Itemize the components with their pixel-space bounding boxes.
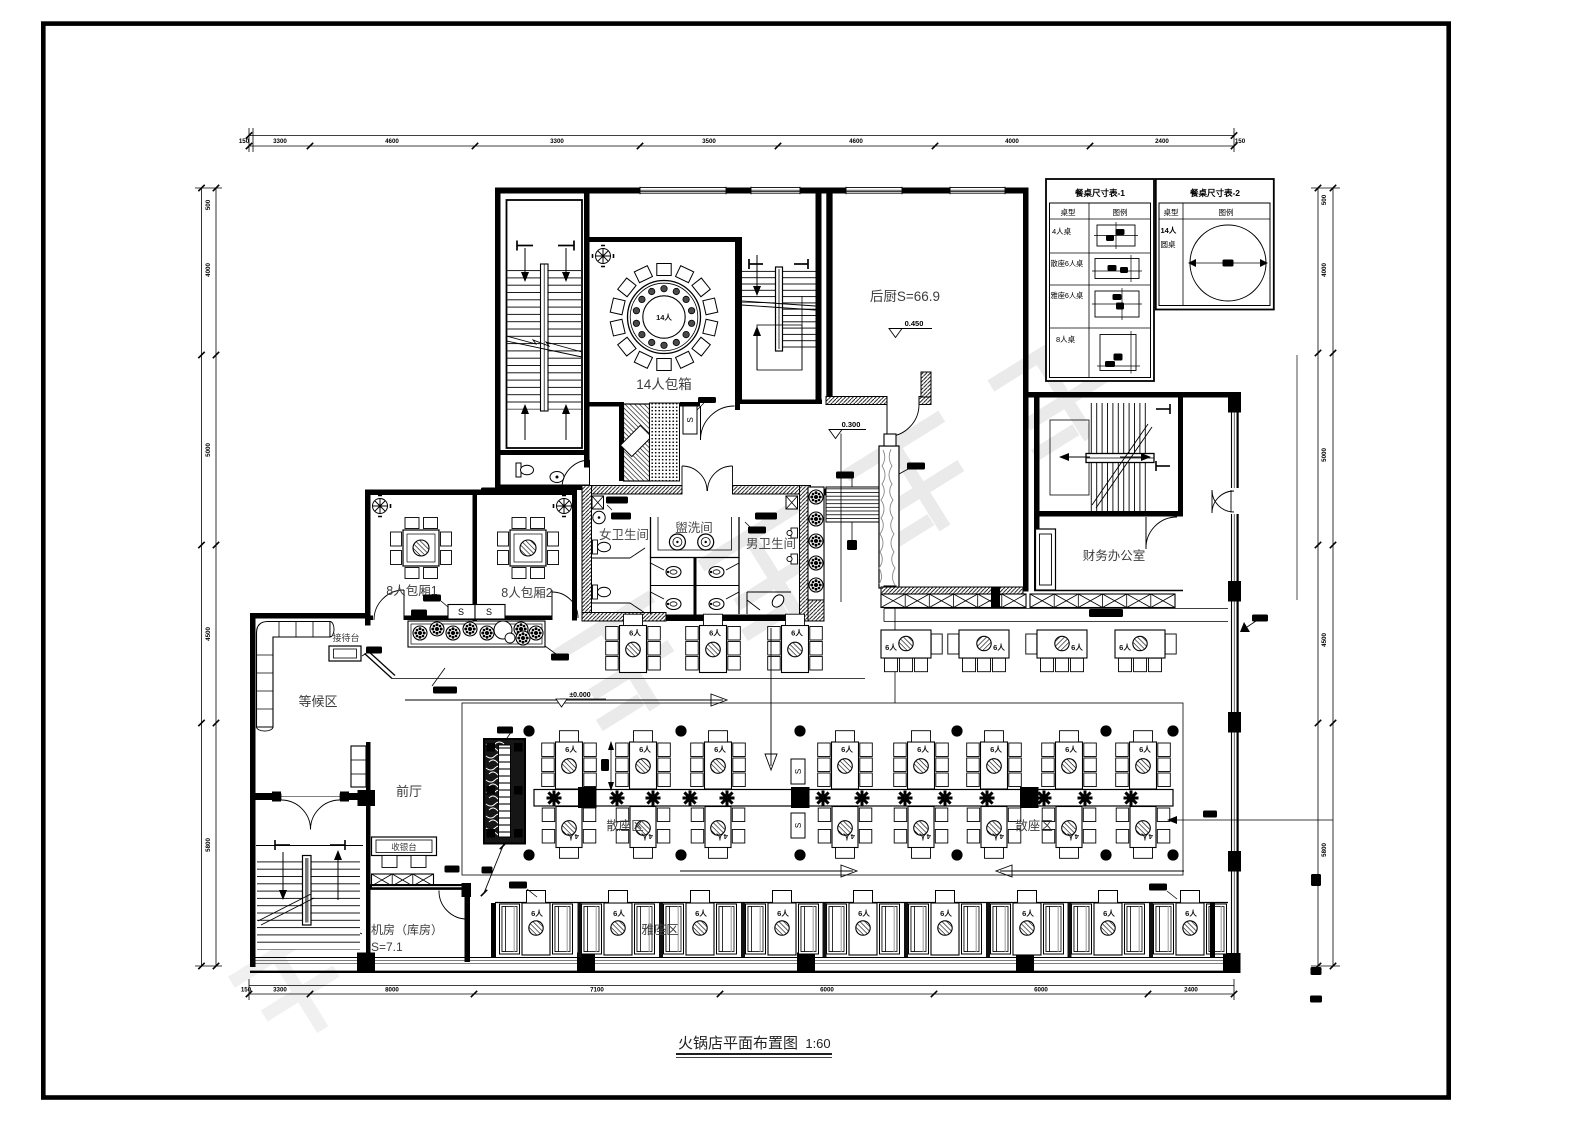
svg-text:S: S [794, 823, 803, 828]
svg-text:6人: 6人 [1119, 643, 1131, 652]
svg-text:S: S [794, 769, 803, 774]
svg-text:8人包厢2: 8人包厢2 [501, 586, 552, 600]
svg-text:1:60: 1:60 [805, 1036, 830, 1051]
svg-text:4600: 4600 [385, 138, 399, 145]
svg-text:图例: 图例 [1113, 207, 1128, 217]
svg-text:雅座区: 雅座区 [641, 922, 679, 937]
svg-text:S=7.1: S=7.1 [371, 940, 403, 954]
svg-text:6人: 6人 [1071, 643, 1083, 652]
svg-text:盥洗间: 盥洗间 [675, 521, 713, 535]
svg-text:餐桌尺寸表-2: 餐桌尺寸表-2 [1189, 188, 1240, 198]
svg-text:散座6人桌: 散座6人桌 [1051, 259, 1084, 268]
svg-text:前厅: 前厅 [396, 784, 422, 799]
svg-text:0.300: 0.300 [842, 420, 861, 429]
svg-text:5800: 5800 [1321, 843, 1328, 857]
svg-text:财务办公室: 财务办公室 [1083, 548, 1146, 563]
svg-text:3300: 3300 [273, 987, 287, 994]
svg-text:14人: 14人 [656, 313, 672, 322]
svg-text:2400: 2400 [1155, 138, 1169, 145]
svg-text:5000: 5000 [205, 443, 212, 457]
svg-text:散座区: 散座区 [606, 818, 644, 833]
svg-text:4600: 4600 [849, 138, 863, 145]
svg-text:500: 500 [205, 199, 212, 210]
svg-text:4000: 4000 [205, 263, 212, 277]
svg-text:150: 150 [241, 987, 252, 994]
svg-text:5000: 5000 [1321, 448, 1328, 462]
svg-text:±0.000: ±0.000 [569, 692, 590, 699]
svg-text:散座区: 散座区 [1015, 818, 1053, 833]
svg-text:5800: 5800 [205, 838, 212, 852]
svg-text:14人: 14人 [1161, 226, 1177, 235]
svg-text:S: S [458, 607, 464, 617]
svg-text:图例: 图例 [1219, 207, 1234, 217]
svg-text:6人: 6人 [993, 643, 1005, 652]
svg-text:4人桌: 4人桌 [1052, 226, 1072, 236]
svg-text:桌型: 桌型 [1164, 207, 1180, 217]
svg-text:7100: 7100 [590, 987, 604, 994]
svg-text:2400: 2400 [1184, 987, 1198, 994]
svg-text:150: 150 [239, 138, 250, 145]
svg-text:3500: 3500 [702, 138, 716, 145]
svg-text:机房（库房）: 机房（库房） [371, 922, 443, 937]
svg-text:S: S [486, 607, 492, 617]
svg-text:500: 500 [1321, 194, 1328, 205]
svg-text:收银台: 收银台 [391, 842, 417, 852]
svg-text:女卫生间: 女卫生间 [599, 527, 649, 542]
svg-text:等候区: 等候区 [298, 694, 337, 709]
svg-text:餐桌尺寸表-1: 餐桌尺寸表-1 [1074, 188, 1125, 198]
svg-text:4000: 4000 [1005, 138, 1019, 145]
svg-text:8000: 8000 [385, 987, 399, 994]
svg-text:4500: 4500 [1321, 633, 1328, 647]
svg-text:桌型: 桌型 [1061, 207, 1077, 217]
svg-text:6000: 6000 [1034, 987, 1048, 994]
svg-text:8人桌: 8人桌 [1056, 334, 1076, 344]
svg-text:圆桌: 圆桌 [1161, 239, 1177, 249]
svg-text:6000: 6000 [820, 987, 834, 994]
svg-text:6人: 6人 [885, 643, 897, 652]
svg-text:4500: 4500 [205, 627, 212, 641]
svg-text:14人包箱: 14人包箱 [636, 377, 692, 392]
svg-text:后厨S=66.9: 后厨S=66.9 [870, 289, 940, 304]
svg-text:S: S [686, 417, 695, 422]
svg-text:3300: 3300 [273, 138, 287, 145]
svg-text:接待台: 接待台 [332, 632, 359, 643]
svg-text:3300: 3300 [550, 138, 564, 145]
svg-text:雅座6人桌: 雅座6人桌 [1051, 291, 1084, 300]
svg-text:0.450: 0.450 [905, 319, 924, 328]
svg-text:4000: 4000 [1321, 263, 1328, 277]
svg-text:火锅店平面布置图: 火锅店平面布置图 [678, 1035, 798, 1052]
svg-text:男卫生间: 男卫生间 [746, 537, 796, 551]
svg-text:150: 150 [1235, 138, 1246, 145]
